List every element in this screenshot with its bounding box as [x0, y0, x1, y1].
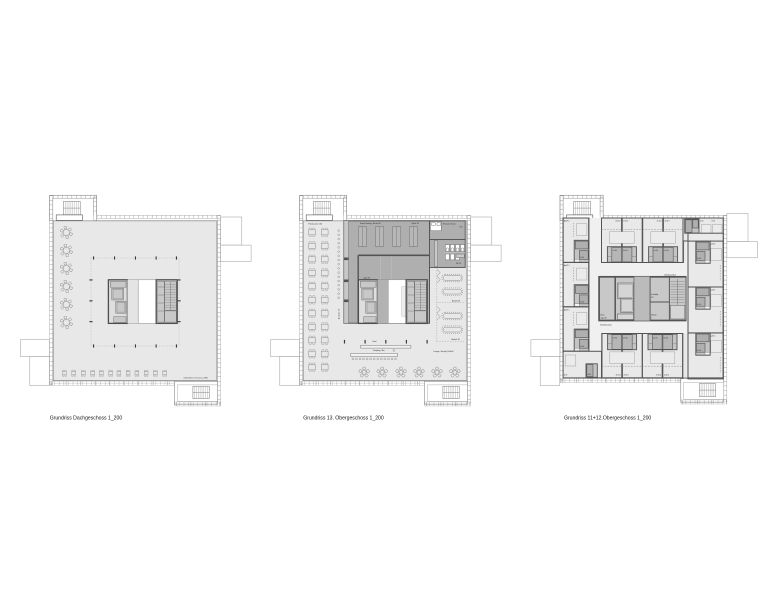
svg-text:Du Wc: Du Wc: [623, 338, 628, 340]
svg-text:Zi 20.5: Zi 20.5: [616, 220, 621, 222]
svg-text:Spüle 33: Spüle 33: [412, 223, 419, 225]
svg-text:Ausgabe 10: Ausgabe 10: [338, 309, 341, 319]
svg-text:Grundriss 11+12.Obergeschoss 1: Grundriss 11+12.Obergeschoss 1_200: [564, 416, 651, 422]
svg-text:Du Wc: Du Wc: [653, 338, 658, 340]
svg-text:Zi 20: Zi 20: [700, 220, 704, 222]
svg-text:Zi 26: Zi 26: [564, 374, 568, 376]
svg-text:Zi 20.5: Zi 20.5: [616, 374, 621, 376]
svg-text:Du Wc: Du Wc: [580, 301, 584, 303]
svg-text:Gard.: Gard.: [372, 341, 377, 343]
svg-text:Lager 33: Lager 33: [363, 277, 370, 279]
svg-text:Zi 20.5: Zi 20.5: [657, 220, 662, 222]
svg-text:Restaurant 140: Restaurant 140: [308, 223, 323, 226]
svg-text:Front-Cooking / Küche 80: Front-Cooking / Küche 80: [360, 222, 380, 225]
svg-text:Wäsche: Wäsche: [651, 315, 656, 317]
svg-text:Lounge / Faculty Club 80: Lounge / Faculty Club 80: [433, 350, 453, 353]
svg-text:5/3: 5/3: [651, 297, 653, 299]
svg-text:Bankett 33: Bankett 33: [452, 338, 460, 341]
svg-text:Grundriss Dachgeschoss 1_200: Grundriss Dachgeschoss 1_200: [50, 416, 123, 422]
svg-text:Erschließg: Erschließg: [651, 294, 658, 296]
svg-text:19.5: 19.5: [460, 226, 463, 228]
svg-text:Du Wc: Du Wc: [613, 338, 618, 340]
svg-text:Du Wc: Du Wc: [580, 346, 584, 348]
svg-text:Du Wc: Du Wc: [697, 304, 701, 306]
svg-text:Du Wc: Du Wc: [587, 374, 591, 376]
svg-text:Du Wc: Du Wc: [697, 350, 701, 352]
svg-text:Empfang / Bar: Empfang / Bar: [373, 350, 385, 352]
svg-text:Du Wc: Du Wc: [654, 250, 659, 252]
svg-text:Du Wc: Du Wc: [697, 258, 701, 260]
svg-text:Du Wc: Du Wc: [664, 250, 669, 252]
svg-text:Zi 20: Zi 20: [712, 220, 716, 222]
svg-text:Zi 20.5: Zi 20.5: [624, 374, 629, 376]
svg-text:Bankett 33: Bankett 33: [452, 300, 460, 303]
svg-text:Zi 20.5: Zi 20.5: [664, 374, 669, 376]
svg-text:Zi 20.5: Zi 20.5: [623, 220, 628, 222]
svg-text:Öffentlicher Terrasse 890: Öffentlicher Terrasse 890: [184, 377, 209, 380]
svg-text:Du Wc: Du Wc: [623, 250, 628, 252]
svg-text:Zi 20.5: Zi 20.5: [665, 220, 670, 222]
svg-text:Grundriss 13. Obergeschoss 1_2: Grundriss 13. Obergeschoss 1_200: [303, 416, 384, 422]
svg-text:Du Wc: Du Wc: [613, 250, 618, 252]
svg-text:WC 20: WC 20: [456, 263, 461, 265]
svg-text:Zi 20.5: Zi 20.5: [656, 374, 661, 376]
svg-text:Du Wc: Du Wc: [664, 338, 669, 340]
svg-text:Du Wc: Du Wc: [580, 257, 584, 259]
